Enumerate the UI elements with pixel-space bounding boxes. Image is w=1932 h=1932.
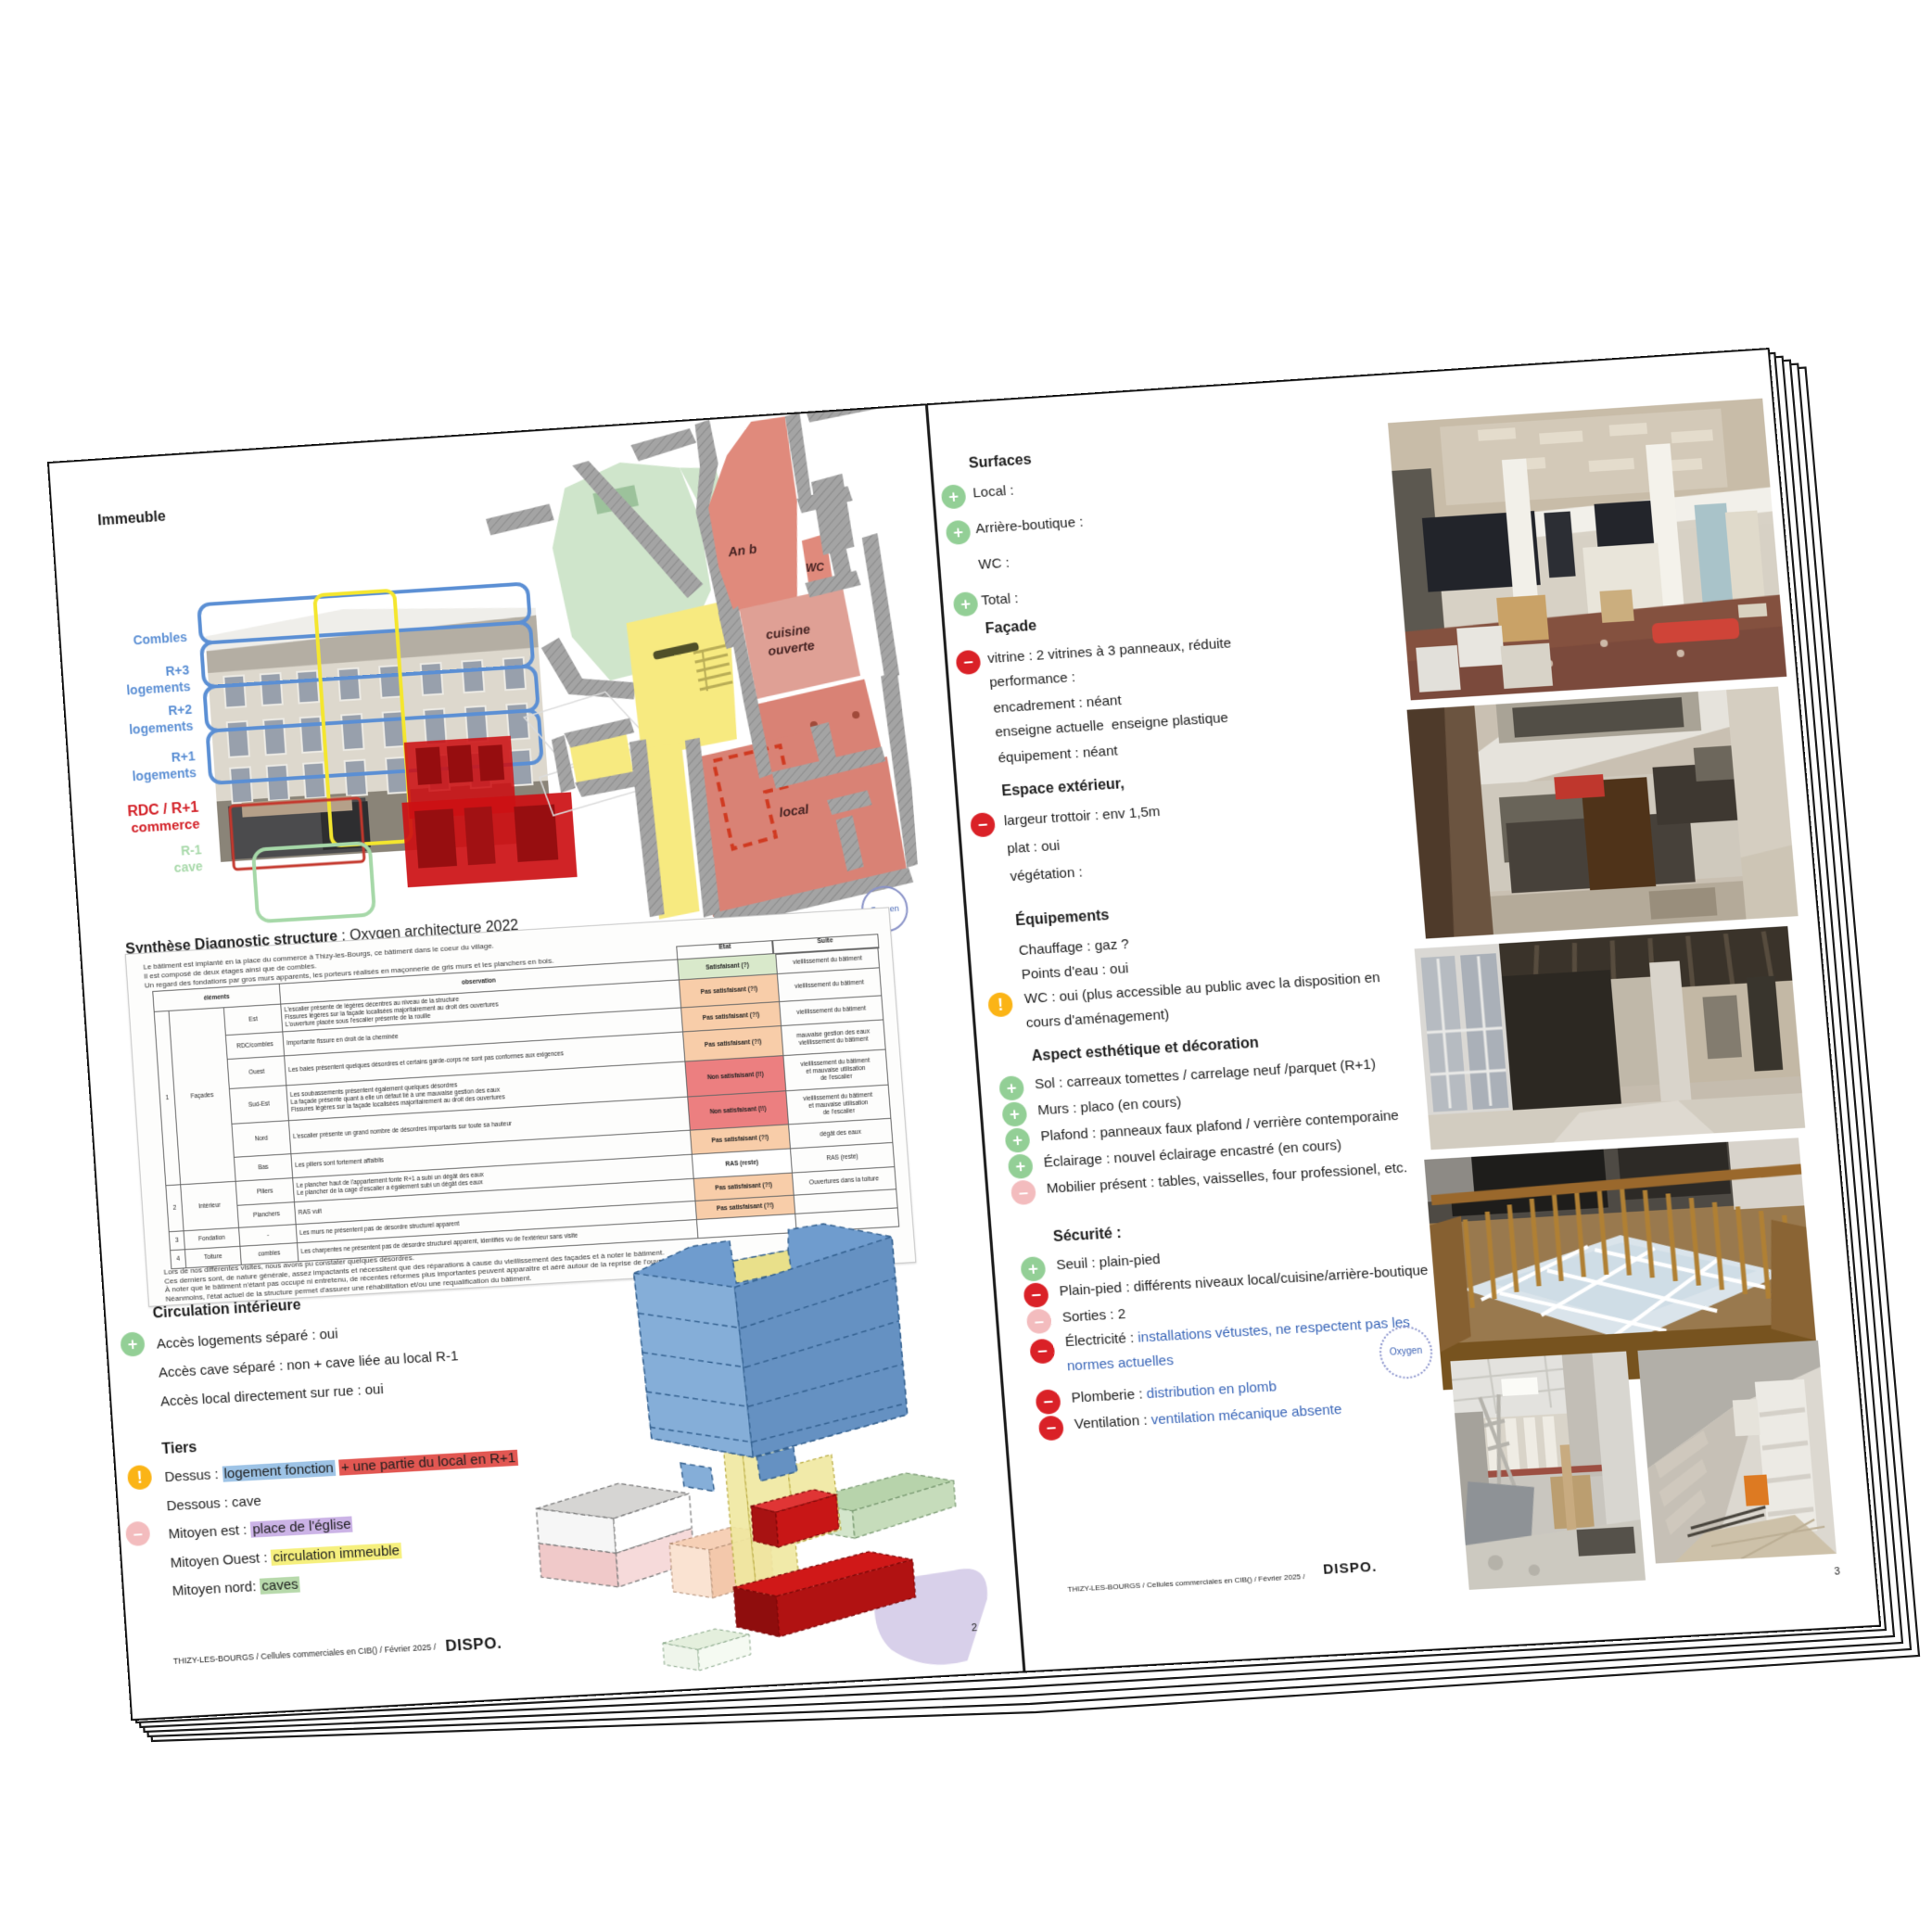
svg-text:WC: WC (806, 561, 825, 574)
